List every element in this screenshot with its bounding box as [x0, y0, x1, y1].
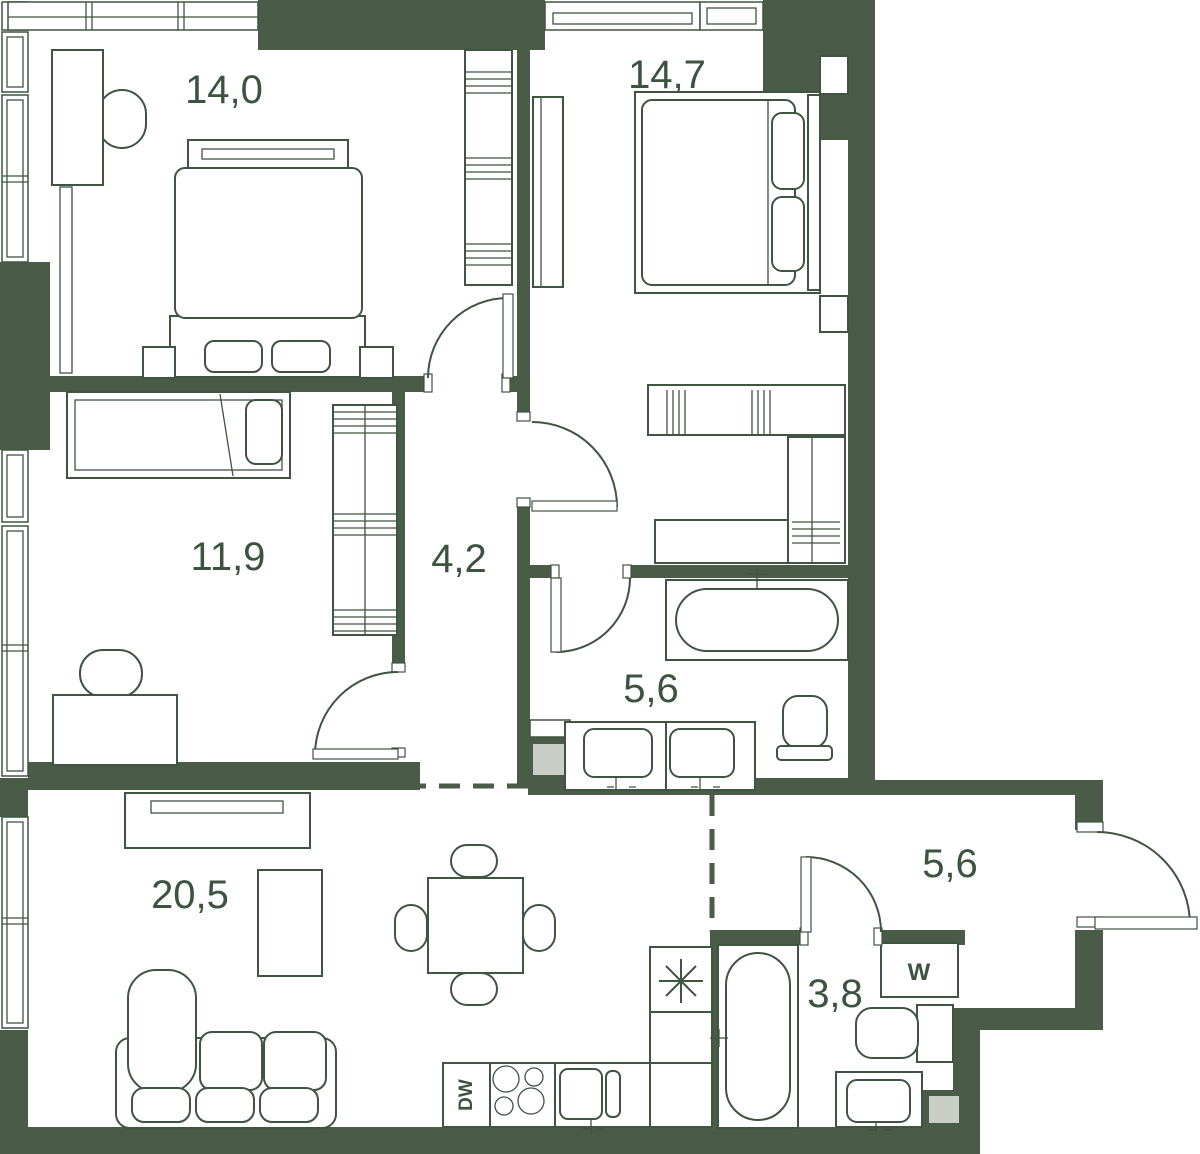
sink [584, 729, 652, 777]
wall [848, 140, 875, 795]
toilet-tank [777, 746, 832, 760]
wall [1075, 930, 1103, 1010]
ventilation-shaft [929, 1096, 959, 1123]
balcony-door-window [700, 2, 763, 30]
door-leaf [313, 749, 398, 759]
window [2, 817, 28, 1028]
dining-table [428, 878, 523, 973]
room-bedroom-main [52, 50, 512, 378]
chair [395, 905, 427, 951]
entrance-door-arc [1097, 832, 1190, 925]
door-jamb [551, 565, 559, 578]
door-jamb [1077, 822, 1103, 832]
wall [0, 1127, 980, 1154]
nightstand [820, 56, 848, 94]
pillow [272, 341, 330, 372]
kitchen-sink-drainer [606, 1071, 620, 1117]
door-leaf [551, 578, 561, 652]
pillow [246, 400, 282, 464]
room-area-label: 14,0 [185, 68, 263, 112]
door-jamb [623, 565, 631, 578]
window [2, 450, 28, 522]
wardrobe [465, 50, 512, 285]
window [2, 32, 28, 92]
bed-bench [188, 140, 348, 168]
bed-frame [170, 316, 365, 377]
floor-plan-svg: 14,0 14,7 11,9 4,2 5,6 20,5 5,6 3,8 DW W [0, 0, 1200, 1154]
room-area-label: 3,8 [807, 972, 863, 1016]
desk [52, 50, 103, 185]
wall [720, 930, 805, 945]
door-jamb [517, 498, 530, 507]
door-jamb [517, 412, 530, 421]
wall [517, 50, 530, 420]
chair [451, 973, 497, 1005]
washer-label: W [908, 959, 931, 986]
floor-plan: 14,0 14,7 11,9 4,2 5,6 20,5 5,6 3,8 DW W [0, 0, 1200, 1154]
wall [630, 565, 850, 578]
toilet-tank [917, 1005, 953, 1062]
wall [0, 262, 50, 450]
cabinet [258, 870, 322, 976]
room-bedroom-second [533, 56, 848, 563]
entrance-door-leaf [1095, 917, 1197, 929]
room-area-label: 14,7 [628, 53, 706, 97]
door-leaf [503, 294, 513, 378]
sofa-chaise [128, 970, 196, 1092]
closet [655, 520, 788, 563]
window [545, 2, 700, 30]
wall [0, 778, 28, 817]
toilet [856, 1008, 918, 1058]
door-arc [428, 298, 508, 378]
sofa-cushion [260, 1088, 318, 1122]
closet [788, 437, 845, 563]
door-arc [315, 672, 398, 755]
chair [98, 90, 146, 148]
chair [80, 650, 142, 697]
sofa-cushion [200, 1032, 262, 1090]
wall [850, 780, 1103, 795]
radiator [60, 187, 72, 373]
wall [953, 1008, 1103, 1030]
pillow [772, 113, 804, 189]
door-arc [532, 422, 617, 507]
window [2, 95, 28, 262]
closet [648, 385, 845, 435]
dishwasher-label: DW [456, 1079, 477, 1111]
window [8, 2, 258, 30]
bathtub [676, 589, 838, 651]
room-area-label: 5,6 [922, 842, 978, 886]
nightstand [820, 296, 848, 332]
room-living-kitchen [116, 793, 712, 1135]
room-area-label: 11,9 [191, 535, 266, 579]
kitchen-sink [560, 1069, 602, 1119]
room-area-label: 4,2 [431, 537, 487, 581]
room-area-label: 5,6 [623, 667, 679, 711]
sofa-cushion [264, 1032, 326, 1090]
pillow [205, 341, 262, 372]
sofa-cushion [132, 1088, 190, 1122]
sink [847, 1080, 910, 1122]
room-area-label: 20,5 [151, 873, 229, 917]
door-jamb [392, 663, 405, 672]
door-arc [556, 578, 630, 652]
sofa-cushion [196, 1088, 254, 1122]
chair [523, 905, 555, 951]
wall [258, 0, 545, 50]
door-leaf [532, 501, 617, 511]
wall [28, 762, 420, 790]
ventilation-shaft [533, 744, 565, 775]
toilet [783, 696, 827, 748]
desk [53, 695, 177, 765]
double-bed [175, 168, 362, 318]
nightstand [360, 347, 393, 378]
sink [670, 729, 734, 777]
nightstand [143, 347, 175, 378]
door-leaf [801, 857, 811, 932]
headboard [808, 95, 820, 290]
door-arc [806, 857, 881, 932]
pillow [772, 197, 804, 271]
wardrobe-tall [533, 97, 563, 287]
room-bathroom-family [565, 566, 848, 791]
bathtub [726, 953, 790, 1120]
chair [451, 845, 497, 877]
